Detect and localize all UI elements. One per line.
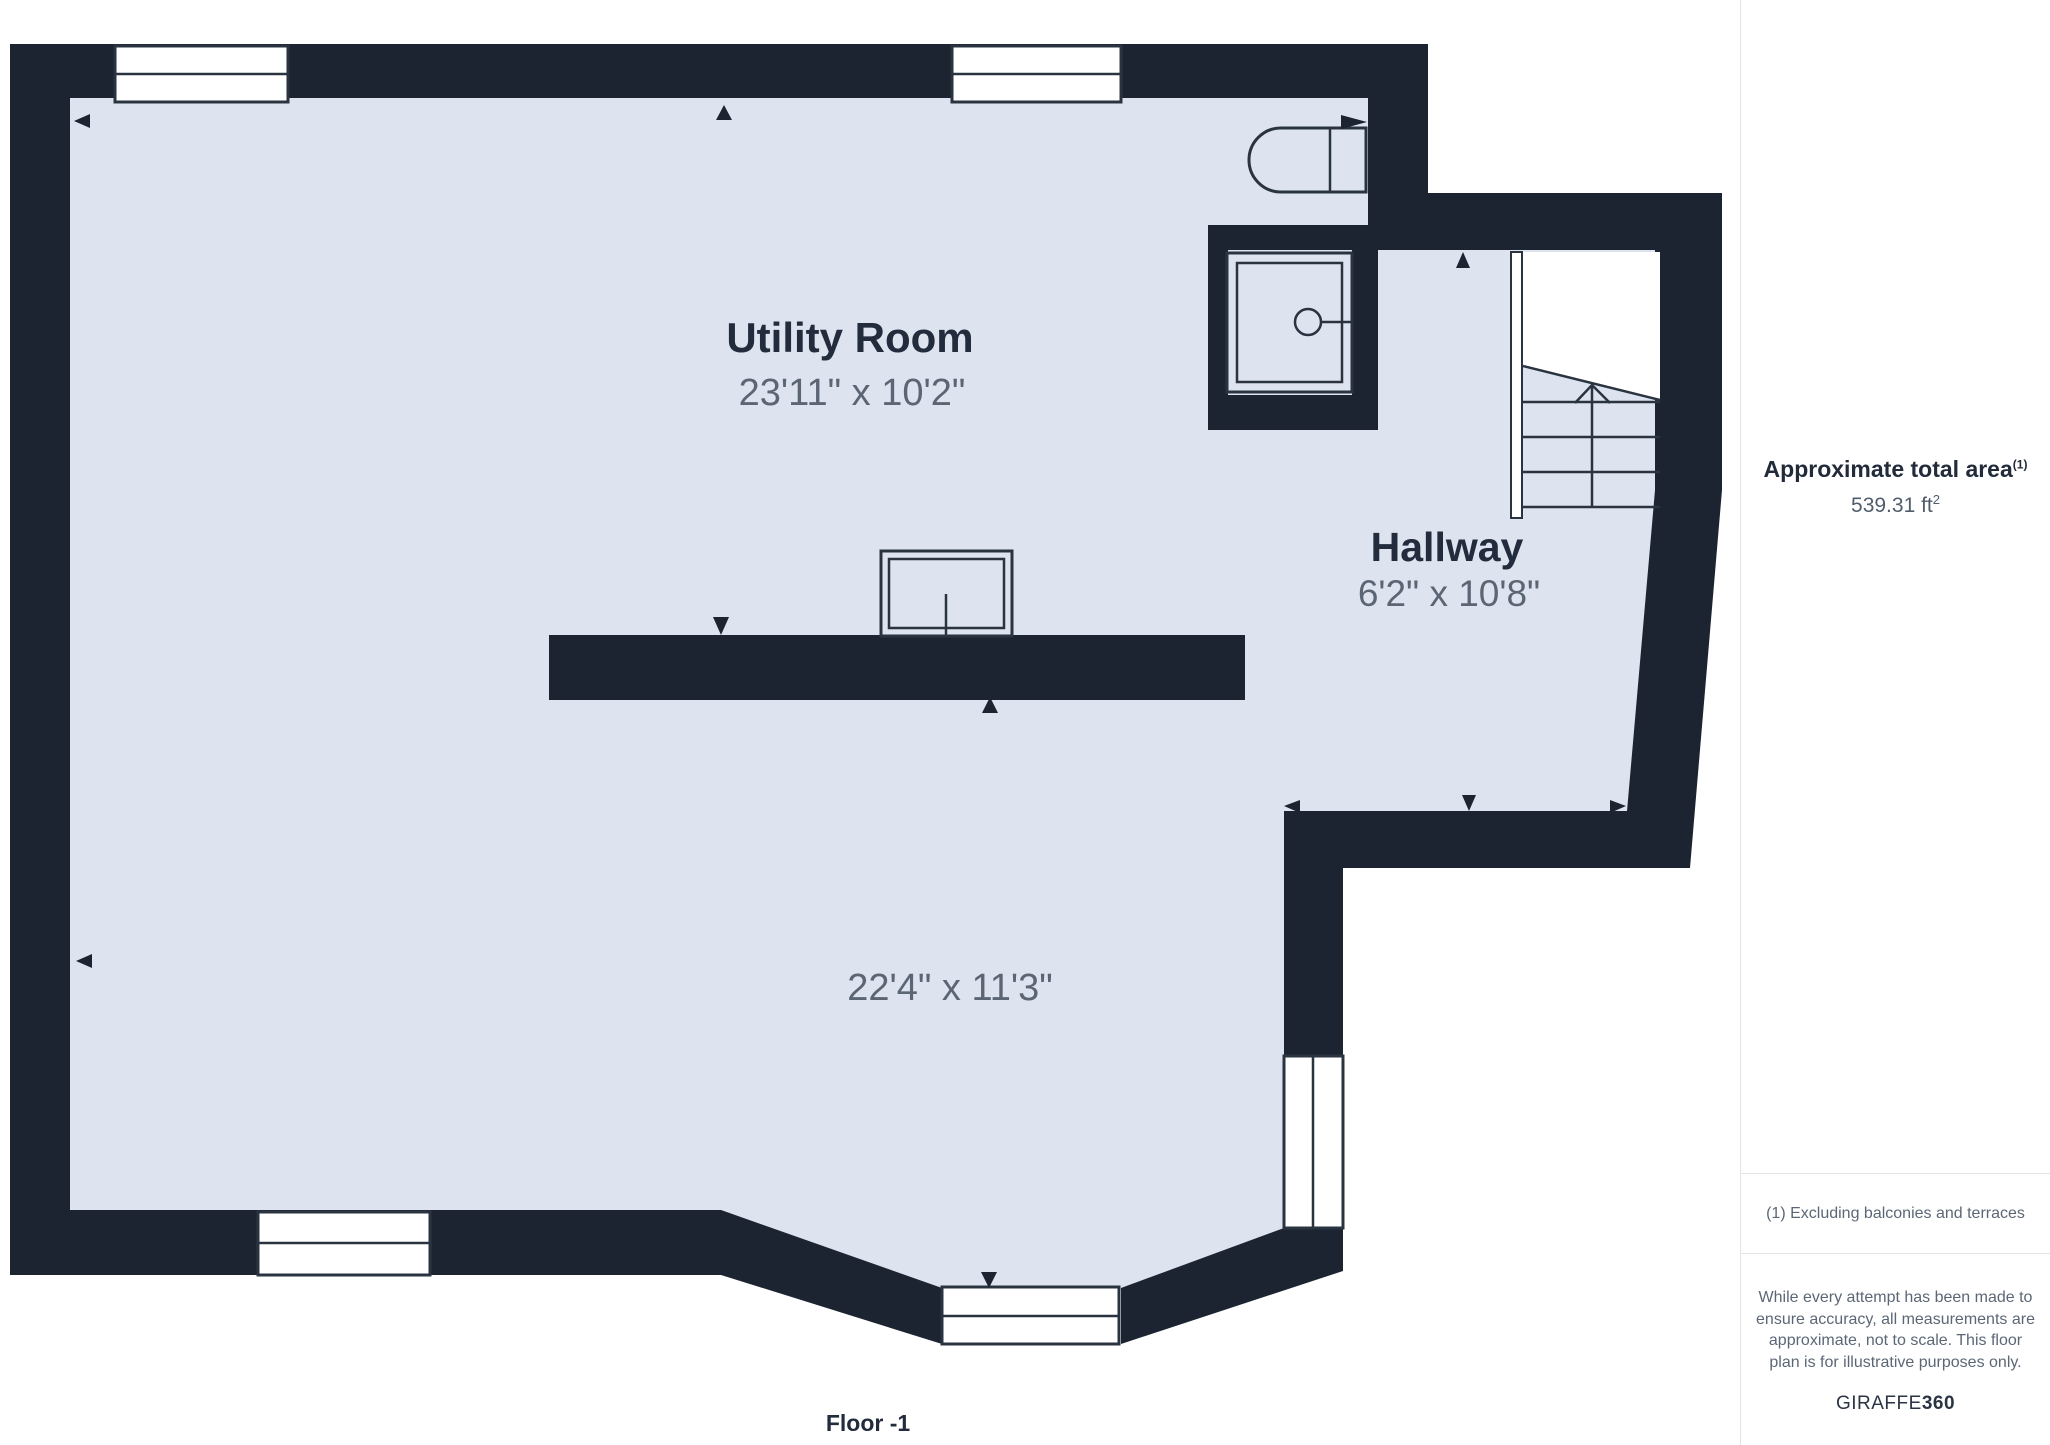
wall-shower-left	[1208, 250, 1228, 395]
room-dims-lower: 22'4" x 11'3"	[847, 967, 1053, 1009]
total-area-title: Approximate total area(1)	[1741, 456, 2050, 483]
window-right-side	[1284, 1056, 1343, 1228]
total-area-value-sup: 2	[1933, 492, 1940, 507]
room-name-utility: Utility Room	[726, 314, 973, 361]
disclaimer-line: plan is for illustrative purposes only.	[1741, 1352, 2050, 1374]
total-area-title-sup: (1)	[2013, 457, 2028, 471]
disclaimer-line: approximate, not to scale. This floor	[1741, 1330, 2050, 1352]
total-area-value: 539.31 ft2	[1741, 492, 2050, 518]
floor-plan-svg: Utility Room 23'11" x 10'2" Hallway 6'2"…	[0, 0, 1740, 1445]
window-bottom-left	[258, 1212, 430, 1275]
disclaimer-line: While every attempt has been made to	[1741, 1287, 2050, 1309]
wall-interior-partition	[549, 635, 1245, 700]
disclaimer-section: While every attempt has been made to ens…	[1741, 1253, 2050, 1445]
sidebar: Approximate total area(1) 539.31 ft2 (1)…	[1740, 0, 2050, 1445]
footnote-text: (1) Excluding balconies and terraces	[1766, 1205, 2025, 1223]
total-area-title-text: Approximate total area	[1764, 456, 2013, 482]
giraffe360-logo: GIRAFFE360	[1741, 1393, 2050, 1415]
shower-fixture	[1227, 253, 1352, 392]
wall-shower-top	[1208, 225, 1428, 250]
disclaimer-line: ensure accuracy, all measurements are	[1741, 1309, 2050, 1331]
window-top-center	[952, 46, 1121, 102]
floor-label: Floor -1	[826, 1410, 911, 1436]
wall-toilet-right	[1368, 44, 1428, 250]
footnote-section: (1) Excluding balconies and terraces	[1741, 1173, 2050, 1253]
page: Utility Room 23'11" x 10'2" Hallway 6'2"…	[0, 0, 2050, 1445]
stair-stringer	[1511, 252, 1522, 518]
fireplace-fixture	[881, 551, 1012, 636]
wall-left	[10, 44, 70, 1275]
toilet-fixture	[1249, 128, 1366, 192]
wall-shower-bottom	[1208, 395, 1378, 430]
wall-hallway-top	[1428, 193, 1722, 250]
room-name-hallway: Hallway	[1371, 524, 1524, 570]
total-area-block: Approximate total area(1) 539.31 ft2	[1741, 456, 2050, 518]
window-bottom-center	[942, 1287, 1119, 1344]
giraffe360-logo-suffix: 360	[1922, 1393, 1955, 1414]
room-dims-utility: 23'11" x 10'2"	[739, 372, 966, 414]
room-dims-hallway: 6'2" x 10'8"	[1358, 573, 1540, 614]
total-area-value-text: 539.31 ft	[1851, 494, 1933, 517]
giraffe360-logo-name: GIRAFFE	[1836, 1393, 1922, 1414]
wall-right-lower-strip	[1284, 868, 1343, 1056]
window-top-left	[115, 46, 288, 102]
